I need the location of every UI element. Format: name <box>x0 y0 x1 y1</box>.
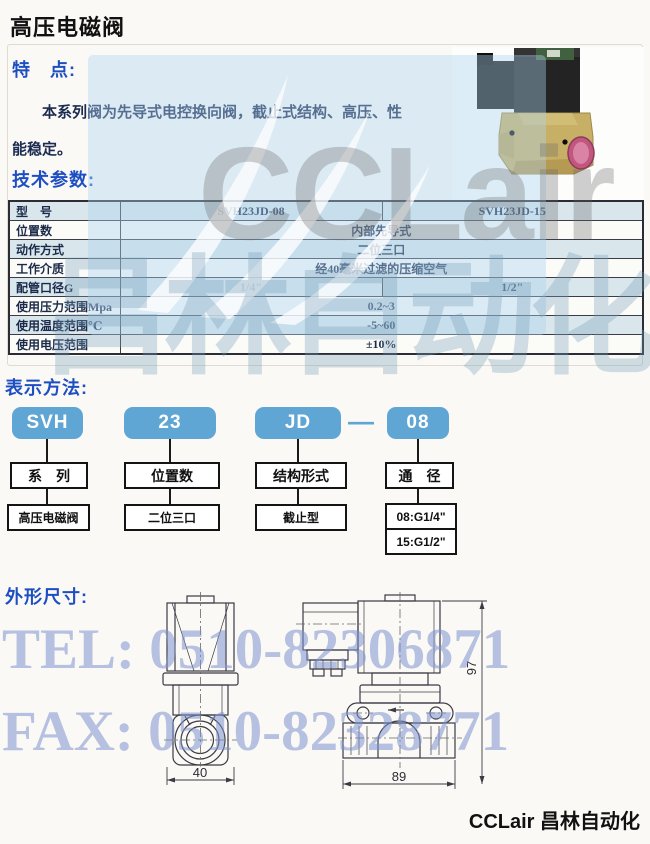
code-pill-series: SVH <box>12 407 83 439</box>
tech-params-heading: 技术参数: <box>12 166 95 192</box>
bore-option-2: 15:G1/2" <box>385 528 457 555</box>
connector-line <box>297 439 299 462</box>
code-pill-structure: JD <box>255 407 341 439</box>
row-label: 动作方式 <box>9 240 120 259</box>
dim-side-width: 89 <box>392 769 406 784</box>
row-value: ±10% <box>120 335 643 355</box>
table-row: 使用温度范围℃ -5~60 <box>9 316 643 335</box>
bore-option-1: 08:G1/4" <box>385 503 457 530</box>
connector-line <box>46 487 48 504</box>
label-box-series: 系 列 <box>10 462 88 489</box>
row-value: 经40毫米过滤的压缩空气 <box>120 259 643 278</box>
bore-value-1: 1/4" <box>120 278 382 297</box>
page-title: 高压电磁阀 <box>10 10 125 42</box>
bore-value-2: 1/2" <box>382 278 643 297</box>
features-line-1: 本系列阀为先导式电控换向阀，截止式结构、高压、性 <box>12 95 450 132</box>
row-label: 使用压力范围Mpa <box>9 297 120 316</box>
table-row: 使用电压范围 ±10% <box>9 335 643 355</box>
row-value: 内部先导式 <box>120 221 643 240</box>
front-view-drawing: 40 <box>148 588 300 800</box>
table-row: 配管口径G 1/4" 1/2" <box>9 278 643 297</box>
label-box-structure: 结构形式 <box>255 462 347 489</box>
code-pill-bore: 08 <box>387 407 449 439</box>
row-label: 位置数 <box>9 221 120 240</box>
spec-table: 型 号 SVH23JD-08 SVH23JD-15 位置数 内部先导式 动作方式… <box>8 200 642 355</box>
connector-line <box>46 439 48 462</box>
footer-brand: CCLair 昌林自动化 <box>420 805 640 834</box>
row-value: -5~60 <box>120 316 643 335</box>
connector-line <box>169 439 171 462</box>
datasheet-page: 高压电磁阀 特 点: 本系列阀为先导式电控换向阀，截止式结构、高压、性 能稳定。 <box>0 0 650 844</box>
table-row: 工作介质 经40毫米过滤的压缩空气 <box>9 259 643 278</box>
connector-line <box>417 487 419 503</box>
connector-line <box>297 487 299 504</box>
row-label: 使用温度范围℃ <box>9 316 120 335</box>
designation-heading: 表示方法: <box>5 374 88 400</box>
value-box-positions: 二位三口 <box>124 504 220 531</box>
model-value-2: SVH23JD-15 <box>382 201 643 221</box>
table-row: 使用压力范围Mpa 0.2~3 <box>9 297 643 316</box>
dimensions-heading: 外形尺寸: <box>5 583 88 609</box>
code-pill-positions: 23 <box>124 407 216 439</box>
side-view-drawing: 89 97 <box>290 588 495 800</box>
value-box-series: 高压电磁阀 <box>7 504 90 531</box>
row-value: 二位三口 <box>120 240 643 259</box>
table-row: 位置数 内部先导式 <box>9 221 643 240</box>
code-dash: — <box>348 406 374 437</box>
row-label: 工作介质 <box>9 259 120 278</box>
features-heading: 特 点: <box>12 56 76 82</box>
dim-side-height: 97 <box>464 661 479 675</box>
model-value-1: SVH23JD-08 <box>120 201 382 221</box>
label-box-positions: 位置数 <box>124 462 220 489</box>
features-paragraph: 本系列阀为先导式电控换向阀，截止式结构、高压、性 能稳定。 <box>12 95 450 169</box>
connector-line <box>169 487 171 504</box>
row-label: 使用电压范围 <box>9 335 120 355</box>
value-box-structure: 截止型 <box>255 504 347 531</box>
dim-front-width: 40 <box>193 765 207 780</box>
row-value: 0.2~3 <box>120 297 643 316</box>
table-row: 动作方式 二位三口 <box>9 240 643 259</box>
connector-line <box>417 439 419 462</box>
label-box-bore: 通 径 <box>385 462 454 489</box>
features-line-2: 能稳定。 <box>12 132 450 169</box>
table-row: 型 号 SVH23JD-08 SVH23JD-15 <box>9 201 643 221</box>
row-label: 型 号 <box>9 201 120 221</box>
row-label: 配管口径G <box>9 278 120 297</box>
